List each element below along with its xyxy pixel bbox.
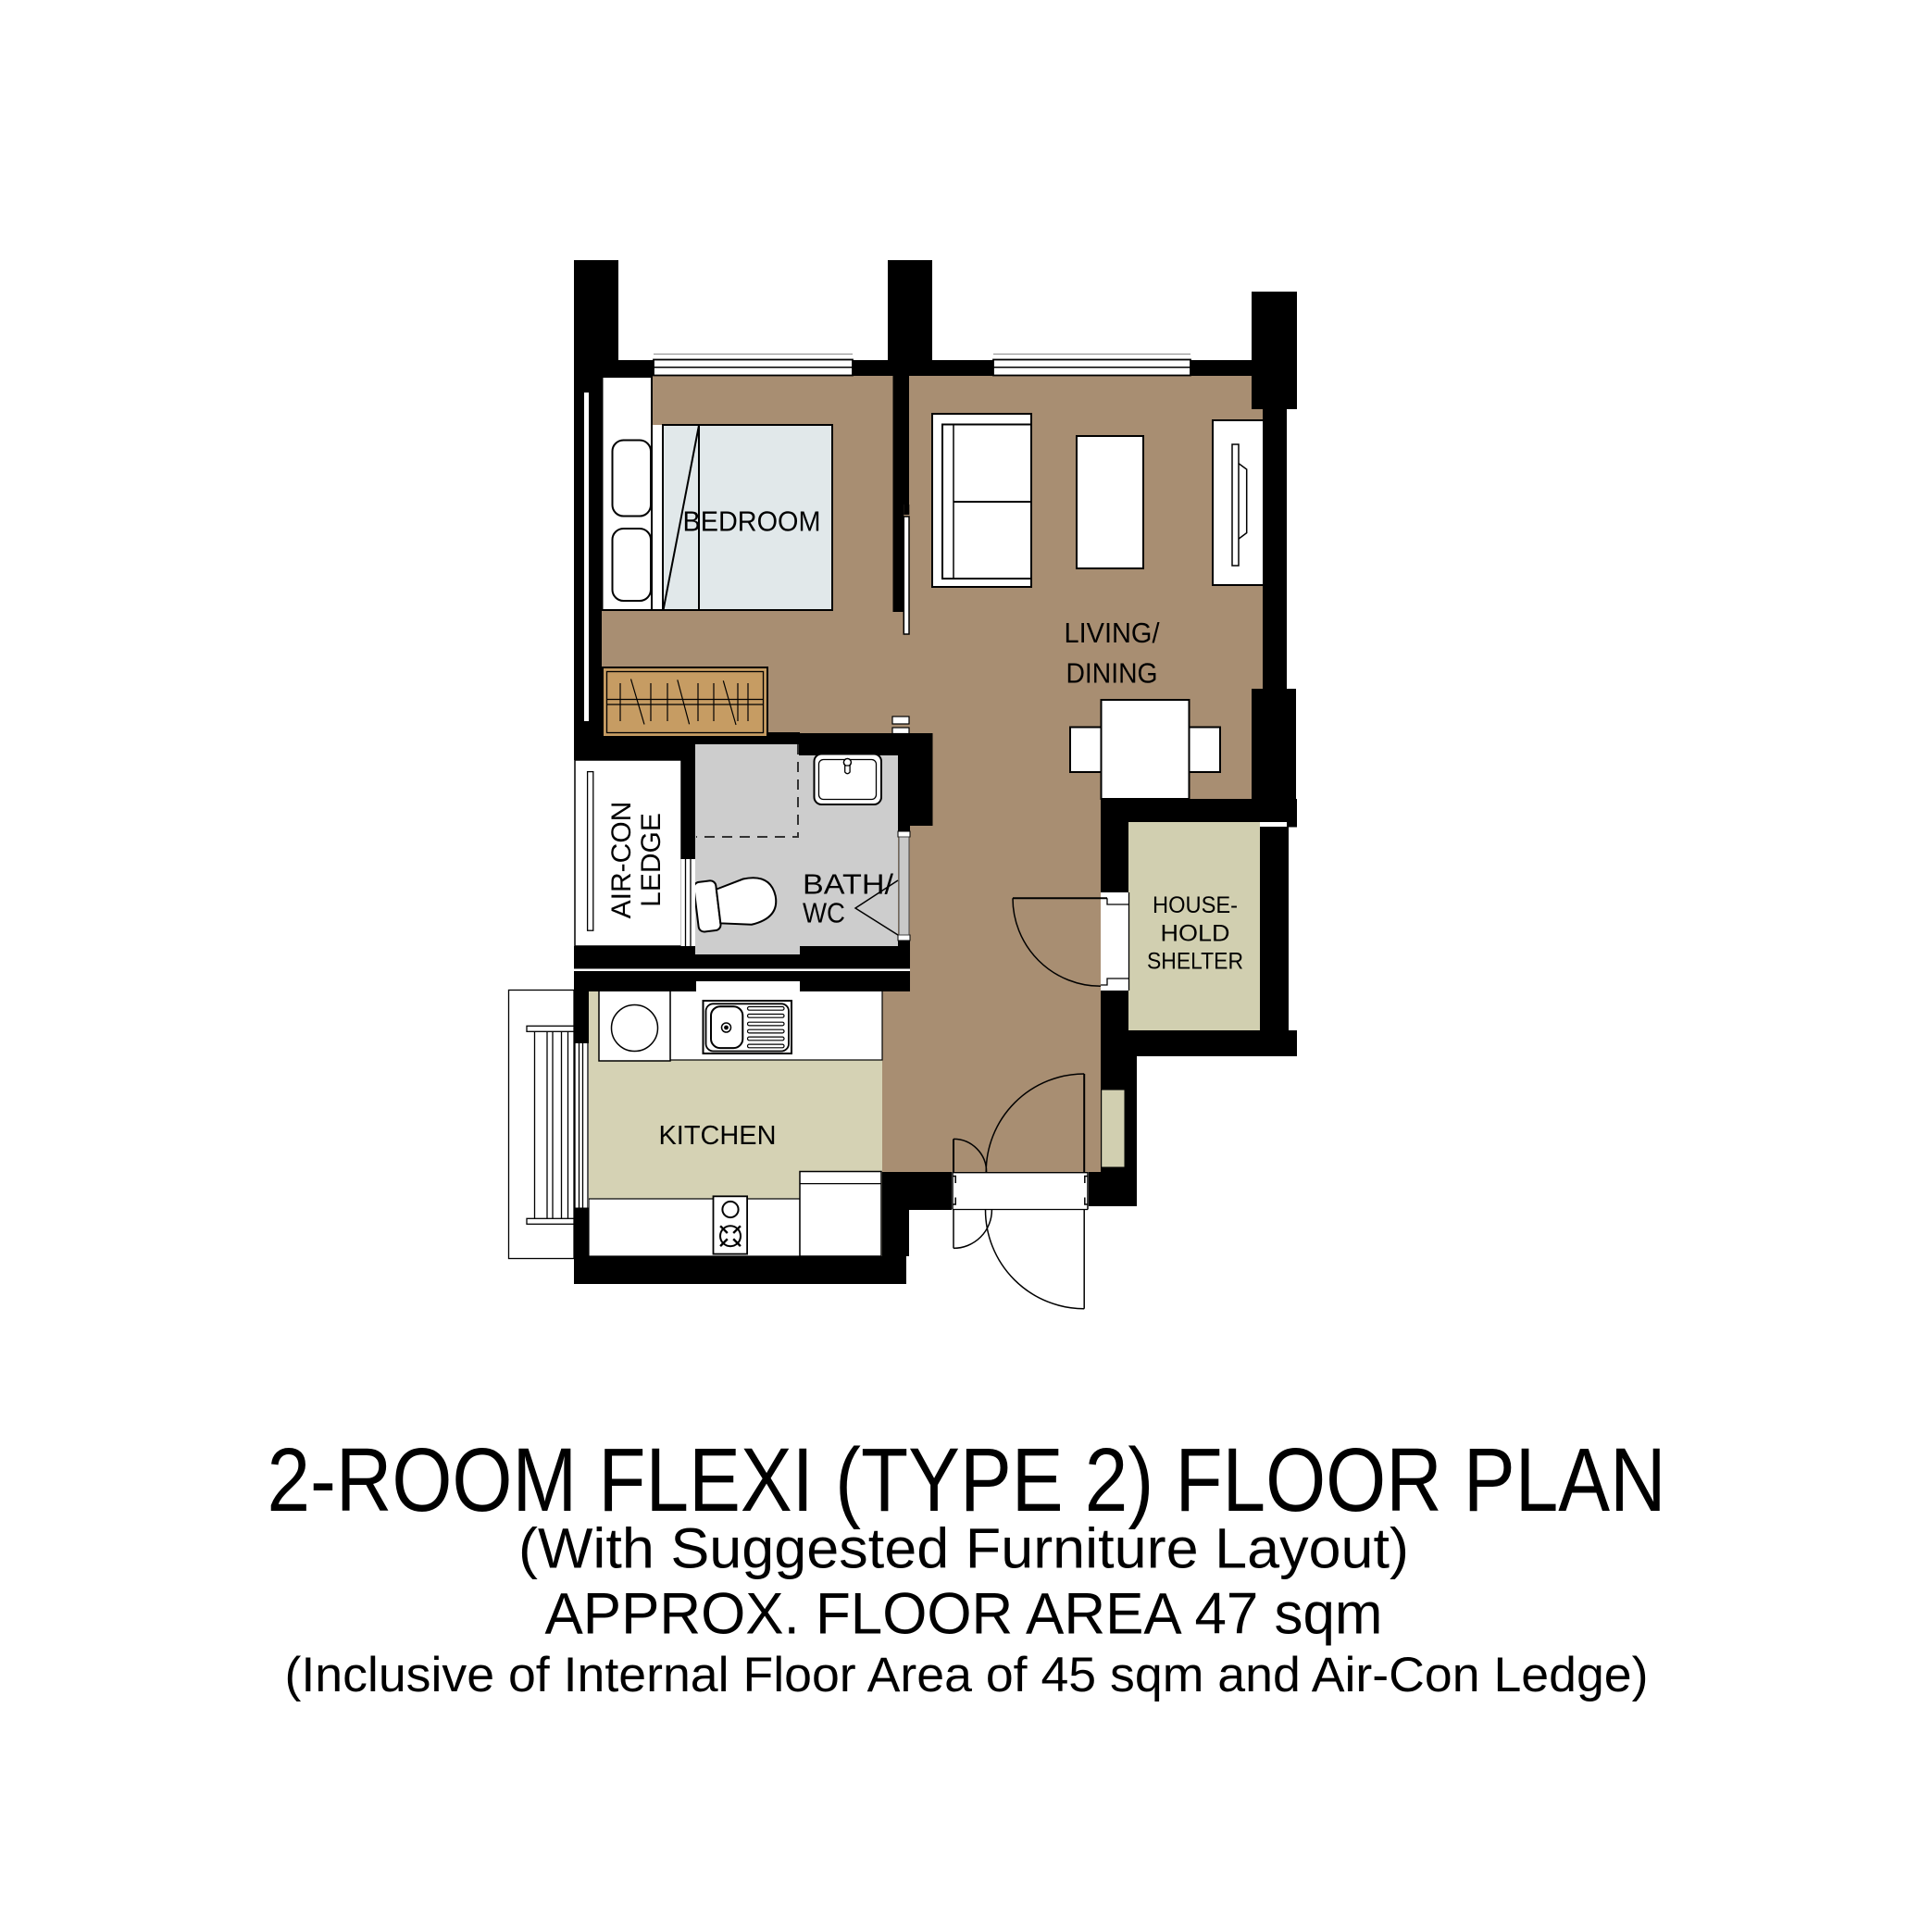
svg-text:BEDROOM: BEDROOM (683, 505, 821, 538)
svg-text:WC: WC (803, 897, 845, 929)
svg-text:BATH/: BATH/ (803, 868, 893, 901)
svg-text:LEDGE: LEDGE (636, 813, 667, 907)
svg-text:HOUSE-: HOUSE- (1153, 892, 1238, 918)
svg-text:DINING: DINING (1066, 657, 1158, 690)
svg-text:AIR-CON: AIR-CON (606, 802, 637, 919)
svg-text:2-ROOM FLEXI (TYPE 2) FLOOR PL: 2-ROOM FLEXI (TYPE 2) FLOOR PLAN (268, 1429, 1666, 1530)
svg-text:KITCHEN: KITCHEN (659, 1121, 777, 1151)
svg-text:LIVING/: LIVING/ (1065, 617, 1160, 649)
svg-text:APPROX. FLOOR AREA 47 sqm: APPROX. FLOOR AREA 47 sqm (545, 1582, 1383, 1647)
svg-text:(With Suggested Furniture Layo: (With Suggested Furniture Layout) (518, 1517, 1409, 1580)
svg-text:HOLD: HOLD (1161, 921, 1230, 947)
svg-text:SHELTER: SHELTER (1147, 949, 1243, 975)
svg-text:(Inclusive of Internal Floor A: (Inclusive of Internal Floor Area of 45 … (285, 1648, 1649, 1702)
